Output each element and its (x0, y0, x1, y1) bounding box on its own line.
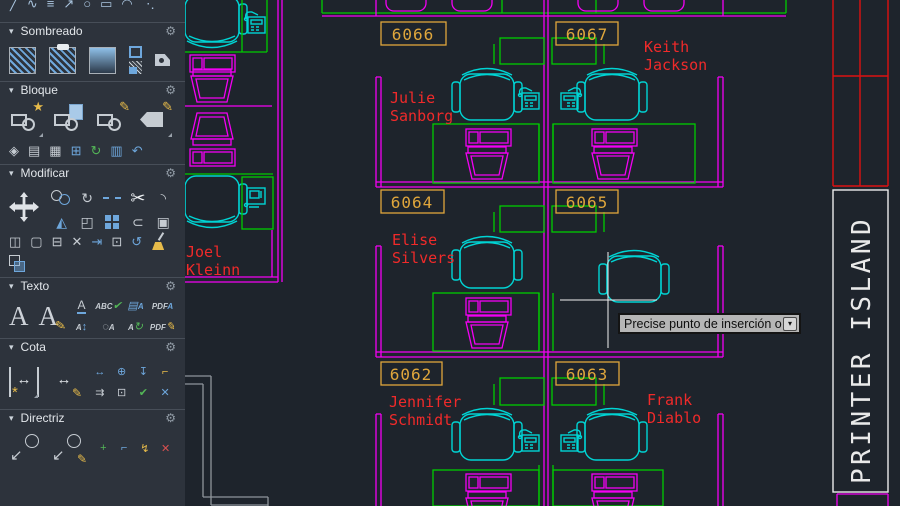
remove-leader-icon[interactable]: ✕ (161, 442, 170, 455)
gear-icon[interactable]: ⚙ (165, 411, 176, 425)
dim-arrow-glyph: ↔ (17, 371, 32, 388)
printer-island[interactable]: PRINTER ISLAND (833, 190, 888, 492)
star-badge-icon: ★ (32, 100, 44, 113)
update-dimension-icon[interactable]: ✔ (139, 386, 148, 399)
section-header-directriz[interactable]: ▾ Directriz ⚙ (0, 409, 185, 426)
autocad-window: ╱ ∿ ≡ ↗ ○ ▭ ◠ ⋱ ▾ Sombreado ⚙ (0, 0, 900, 506)
gear-icon[interactable]: ⚙ (165, 166, 176, 180)
red-grid-lines[interactable] (833, 0, 888, 186)
vertical-dimension-icon[interactable]: ↧ (139, 365, 148, 378)
pencil-glyph: ✎ (166, 321, 175, 333)
abc-label: ABC (95, 302, 112, 311)
write-block-icon[interactable]: ▦ (49, 144, 61, 157)
arc-icon[interactable]: ◠ (121, 0, 132, 12)
section-header-bloque[interactable]: ▾ Bloque ⚙ (0, 81, 185, 98)
dimension-style-icon[interactable]: ↔✎ (49, 367, 79, 397)
section-sombreado: ▾ Sombreado ⚙ (0, 22, 185, 81)
hatch-toggle-icon[interactable] (129, 61, 142, 74)
pencil-glyph: ✎ (72, 386, 82, 400)
section-header-texto[interactable]: ▾ Texto ⚙ (0, 277, 185, 294)
collapse-icon[interactable]: ▾ (9, 342, 14, 353)
check-icon: ✔ (113, 300, 122, 312)
break-icon[interactable]: ⊟ (52, 235, 63, 248)
section-header-modificar[interactable]: ▾ Modificar ⚙ (0, 164, 185, 181)
section-label: Modificar (21, 166, 159, 180)
insert-block-icon[interactable]: ★ (9, 104, 42, 136)
dynamic-input-prompt[interactable]: Precise punto de inserción o ▾ (618, 313, 801, 334)
create-block-icon[interactable] (52, 104, 85, 136)
scale-text-icon[interactable]: A↕ (76, 321, 87, 333)
gradient-hatch-icon[interactable] (49, 47, 76, 74)
tolerance-icon[interactable]: ⊡ (117, 386, 126, 399)
bottom-right-wall[interactable] (837, 494, 888, 506)
spark-glyph: * (12, 384, 18, 401)
stretch-icon[interactable]: ◰ (80, 214, 93, 231)
section-label: Texto (21, 279, 159, 293)
tool-palette-icon[interactable] (155, 54, 170, 66)
hatch-origin-marker (57, 44, 69, 50)
collect-leader-icon[interactable]: ↯ (140, 442, 149, 455)
section-modificar: ▾ Modificar ⚙ ↻ ✂ ◝ ◭ ◰ ⊂ ▣ (0, 164, 185, 277)
erase-icon[interactable]: ▢ (30, 235, 42, 248)
refresh-glyph: ↻ (134, 321, 143, 333)
rectangle-icon[interactable]: ▭ (100, 0, 112, 12)
extrude-icon[interactable]: ▣ (157, 214, 170, 231)
hatch-icon[interactable] (9, 47, 36, 74)
occupant-name[interactable]: Frank (647, 391, 692, 409)
mirror-icon[interactable]: ◭ (56, 214, 67, 231)
rotate-icon[interactable]: ↻ (81, 190, 93, 207)
leader-arrow-glyph: ↙ (52, 446, 65, 464)
collapse-icon[interactable]: ▾ (9, 281, 14, 292)
dim-arrow-glyph: ↔ (57, 371, 72, 388)
updown-arrow-icon: ↕ (82, 321, 88, 333)
prompt-dropdown-button[interactable]: ▾ (783, 317, 797, 331)
text-style-icon[interactable]: A✎ (39, 303, 59, 330)
occupant-name[interactable]: Kleinn (186, 261, 240, 279)
update-text-icon[interactable]: A↻ (128, 320, 143, 333)
align-icon[interactable]: ⊡ (111, 235, 122, 248)
section-label: Sombreado (21, 24, 159, 38)
collapse-icon[interactable]: ▾ (9, 85, 14, 96)
line-icon[interactable]: ╱ (10, 0, 18, 12)
occupant-name[interactable]: Schmidt (389, 411, 452, 429)
edit-text-icon[interactable]: A (77, 298, 85, 314)
occupant-name[interactable]: Diablo (647, 409, 701, 427)
multileader-icon[interactable]: ↙ (9, 434, 41, 462)
pdf-label: PDF (150, 323, 166, 332)
collapse-icon[interactable]: ▾ (9, 168, 14, 179)
inserting-chair-block[interactable] (599, 251, 669, 303)
section-label: Cota (21, 340, 159, 354)
copy-nested-icon[interactable] (9, 255, 29, 273)
spine-desk-edges[interactable] (539, 124, 553, 506)
add-leader-icon[interactable]: + (100, 442, 106, 454)
section-texto: ▾ Texto ⚙ A A✎ A ABC✔ ▤A PDFA A↕ ◌A A↻ P… (0, 277, 185, 338)
section-cota: ▾ Cota ⚙ ↔* ↔✎ ↔ ⊕ ↧ ⌐ ⇉ ⊡ ✔ ✕ (0, 338, 185, 409)
gradient-fill-icon[interactable] (89, 47, 116, 74)
tag-icon (140, 112, 163, 127)
trim-icon[interactable] (103, 197, 121, 199)
align-leader-icon[interactable]: ⌐ (121, 442, 127, 454)
drawing-canvas[interactable]: PRINTER ISLAND 6066 6067 6064 6065 6062 … (185, 0, 900, 506)
scissors-icon[interactable]: ✂ (130, 188, 145, 209)
chairs[interactable] (185, 0, 647, 460)
workstations[interactable] (466, 129, 637, 506)
occupant-names[interactable]: Julie Sanborg Keith Jackson Elise Silver… (186, 38, 707, 429)
collapse-icon[interactable]: ▾ (9, 26, 14, 37)
circle-icon[interactable]: ○ (83, 0, 91, 11)
dimension-constraint-icon[interactable]: ✕ (161, 386, 170, 399)
block-editor-icon[interactable]: ✎ (95, 104, 128, 136)
gear-icon[interactable]: ⚙ (165, 279, 176, 293)
section-header-cota[interactable]: ▾ Cota ⚙ (0, 338, 185, 355)
find-text-icon[interactable]: ◌A (102, 321, 114, 333)
center-mark-icon[interactable]: ⊕ (117, 365, 126, 378)
printer-island-label[interactable]: PRINTER ISLAND (847, 216, 877, 484)
occupant-name[interactable]: Elise (392, 231, 437, 249)
boundary-icon[interactable] (129, 46, 142, 58)
occupant-name[interactable]: Keith (644, 38, 689, 56)
mtext-icon[interactable]: A (9, 303, 29, 330)
collapse-icon[interactable]: ▾ (9, 413, 14, 424)
prompt-text: Precise punto de inserción o (620, 317, 783, 331)
pdf-import-text-icon[interactable]: PDFA (152, 300, 173, 312)
spell-check-icon[interactable]: ABC✔ (95, 299, 122, 312)
sync-attributes-icon[interactable]: ↻ (91, 144, 102, 157)
divide-icon[interactable]: ✕ (72, 235, 83, 248)
parallel-lines-icon[interactable]: ≡ (47, 0, 55, 11)
a-glyph: A (138, 302, 144, 311)
brush-icon: ✎ (54, 318, 67, 333)
lengthen-icon[interactable]: ⇥ (91, 235, 102, 248)
occupant-name[interactable]: Jennifer (389, 393, 461, 411)
dimension-icon[interactable]: ↔* (9, 367, 39, 397)
partition-walls[interactable] (376, 77, 723, 506)
clean-icon[interactable] (151, 233, 166, 250)
pdf-label: PDF (152, 302, 168, 311)
cubicle-number[interactable]: 6065 (566, 193, 609, 212)
attribute-display-icon[interactable]: ▤ (28, 144, 40, 157)
section-header-sombreado[interactable]: ▾ Sombreado ⚙ (0, 22, 185, 39)
replace-block-icon[interactable]: ↶ (132, 144, 143, 157)
gear-icon[interactable]: ⚙ (165, 340, 176, 354)
pencil-badge-icon: ✎ (119, 100, 130, 113)
cubicle-number[interactable]: 6067 (566, 25, 609, 44)
pencil-badge-icon: ✎ (162, 100, 173, 113)
point-icon[interactable]: ⋱ (142, 0, 155, 12)
gear-icon[interactable]: ⚙ (165, 24, 176, 38)
base-point-icon[interactable]: ⊞ (71, 144, 82, 157)
a-glyph: A (167, 302, 173, 311)
move-arrows-icon (9, 192, 39, 222)
define-attributes-icon[interactable]: ◈ (9, 144, 19, 157)
occupant-name[interactable]: Sanborg (390, 107, 453, 125)
table-glyph: ▤ (127, 300, 137, 312)
leader-arrow-glyph: ↙ (10, 446, 23, 464)
upper-cubicle-remnants[interactable] (322, 0, 786, 16)
brush-icon: ✎ (77, 452, 87, 466)
a-glyph: A (109, 323, 115, 332)
ordinate-dimension-icon[interactable]: ⌐ (162, 366, 168, 378)
occupant-name[interactable]: Julie (390, 89, 435, 107)
tool-dot (159, 58, 164, 63)
pdf-edit-icon[interactable]: PDF✎ (150, 320, 175, 333)
hatch-fill-marker (129, 67, 137, 74)
corridor-walls[interactable] (185, 376, 268, 506)
polyline-icon[interactable]: ∿ (27, 0, 38, 12)
fillet-icon[interactable]: ◝ (161, 190, 166, 207)
offset-icon[interactable]: ◫ (9, 235, 21, 248)
tool-palette: ╱ ∿ ≡ ↗ ○ ▭ ◠ ⋱ ▾ Sombreado ⚙ (0, 0, 185, 506)
section-label: Directriz (21, 411, 159, 425)
cubicle-number[interactable]: 6062 (390, 365, 433, 384)
array-icon[interactable] (105, 215, 119, 229)
baseline-dimension-icon[interactable]: ⇉ (95, 386, 104, 399)
occupant-name[interactable]: Joel (186, 243, 222, 261)
reverse-icon[interactable]: ↺ (131, 235, 142, 248)
cubicle-number[interactable]: 6063 (566, 365, 609, 384)
copy-icon[interactable] (51, 190, 73, 207)
occupant-name[interactable]: Silvers (392, 249, 455, 267)
section-label: Bloque (21, 83, 159, 97)
draw-toolbar: ╱ ∿ ≡ ↗ ○ ▭ ◠ ⋱ (0, 0, 185, 22)
move-icon[interactable] (9, 186, 41, 228)
sweep-icon[interactable]: ⊂ (132, 214, 144, 231)
multileader-style-icon[interactable]: ↙✎ (51, 434, 83, 462)
edit-attribute-icon[interactable]: ✎ (138, 104, 171, 136)
section-bloque: ▾ Bloque ⚙ ★ ✎ ✎ ◈ ▤ ▦ ⊞ ↻ ▥ ↶ (0, 81, 185, 164)
section-directriz: ▾ Directriz ⚙ ↙ ↙✎ + ⌐ ↯ ✕ (0, 409, 185, 470)
text-list-icon[interactable]: ▤A (127, 299, 143, 312)
occupant-name[interactable]: Jackson (644, 56, 707, 74)
ray-icon[interactable]: ↗ (63, 0, 74, 12)
linear-dimension-icon[interactable]: ↔ (94, 366, 105, 378)
spine-wall[interactable] (544, 0, 548, 506)
attribute-edit-icon[interactable]: ▥ (110, 144, 122, 157)
cubicle-number[interactable]: 6066 (392, 25, 435, 44)
gear-icon[interactable]: ⚙ (165, 83, 176, 97)
desks[interactable] (433, 38, 695, 506)
cubicle-number[interactable]: 6064 (391, 193, 434, 212)
